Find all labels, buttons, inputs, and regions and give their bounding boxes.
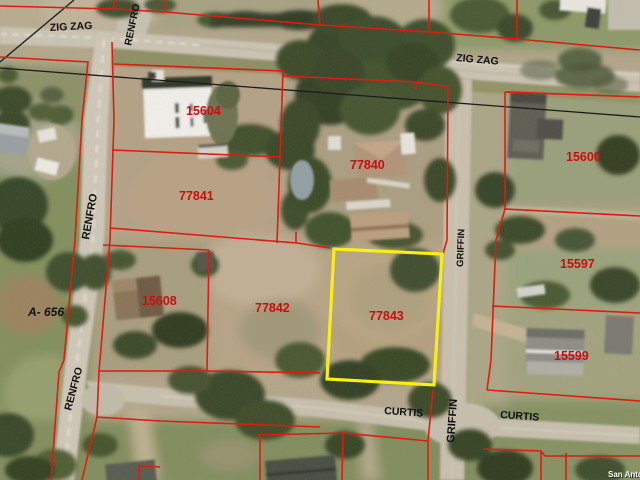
- svg-text:A- 656: A- 656: [27, 305, 64, 319]
- svg-text:15608: 15608: [142, 294, 177, 308]
- svg-text:GRIFFIN: GRIFFIN: [455, 229, 467, 267]
- svg-text:77840: 77840: [350, 158, 385, 172]
- svg-text:77842: 77842: [255, 301, 290, 315]
- svg-text:77841: 77841: [179, 189, 214, 203]
- svg-text:San Anto: San Anto: [608, 470, 640, 479]
- svg-text:15600: 15600: [566, 150, 601, 164]
- svg-text:15604: 15604: [186, 104, 221, 118]
- svg-text:15597: 15597: [560, 257, 595, 271]
- svg-text:15599: 15599: [554, 349, 589, 363]
- svg-text:ZIG ZAG: ZIG ZAG: [50, 20, 93, 34]
- svg-text:77843: 77843: [369, 309, 404, 323]
